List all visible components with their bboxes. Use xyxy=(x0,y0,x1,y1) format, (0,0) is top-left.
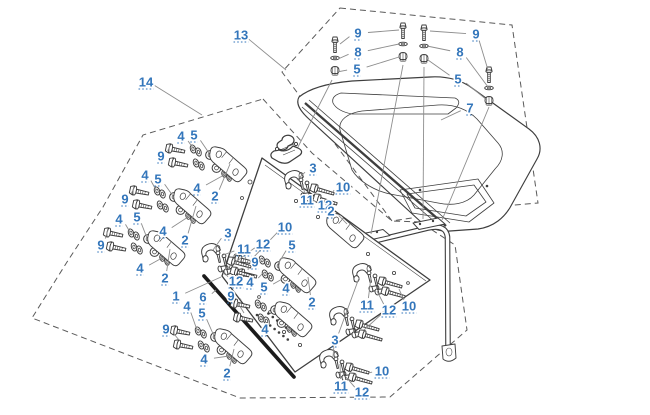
callout-leader xyxy=(141,223,147,238)
callout-5-44[interactable]: 5 xyxy=(260,280,268,295)
callout-2-23[interactable]: 2 xyxy=(161,271,169,286)
callout-number[interactable]: 2 xyxy=(211,189,218,204)
callout-number[interactable]: 9 xyxy=(251,255,258,270)
callout-number[interactable]: 2 xyxy=(161,271,168,286)
callout-2-28[interactable]: 2 xyxy=(223,366,231,381)
frame-foot-right xyxy=(442,344,456,361)
callout-4-43[interactable]: 4 xyxy=(246,275,254,290)
callout-9-26[interactable]: 9 xyxy=(162,322,170,337)
callout-leader xyxy=(165,184,173,196)
latch-part xyxy=(271,135,302,163)
callout-leader xyxy=(155,86,202,115)
callout-number[interactable]: 5 xyxy=(198,306,205,321)
callout-number[interactable]: 12 xyxy=(256,237,270,252)
callout-leader xyxy=(479,41,488,70)
callout-2-46[interactable]: 2 xyxy=(308,295,316,310)
callout-leader xyxy=(368,44,399,51)
callout-11-49[interactable]: 11 xyxy=(360,298,375,313)
callout-number[interactable]: 4 xyxy=(246,275,254,290)
callout-8-5[interactable]: 8 xyxy=(456,45,464,60)
callout-number[interactable]: 3 xyxy=(309,161,316,176)
callout-leader xyxy=(428,60,450,75)
callout-number[interactable]: 12 xyxy=(229,274,243,289)
callout-number[interactable]: 9 xyxy=(157,149,164,164)
callout-4-14[interactable]: 4 xyxy=(141,168,149,183)
callout-leader xyxy=(338,54,349,59)
callout-10-39[interactable]: 10 xyxy=(278,220,293,235)
fastener-stack xyxy=(399,23,408,62)
callout-number[interactable]: 11 xyxy=(237,242,251,257)
hardware-set xyxy=(103,227,190,268)
callout-5-10[interactable]: 5 xyxy=(190,128,198,143)
callout-4-12[interactable]: 4 xyxy=(193,181,201,196)
callout-number[interactable]: 11 xyxy=(360,298,374,313)
callout-number[interactable]: 9 xyxy=(354,26,361,41)
hardware-set xyxy=(165,143,252,184)
callout-number[interactable]: 5 xyxy=(260,280,267,295)
callout-number[interactable]: 6 xyxy=(199,290,206,305)
callout-11-32[interactable]: 11 xyxy=(300,193,315,208)
callout-6-30[interactable]: 6 xyxy=(199,290,207,305)
callout-number[interactable]: 3 xyxy=(331,333,338,348)
callout-number[interactable]: 5 xyxy=(454,72,461,87)
parts-diagram-page: 1398598571445942459424594245942163111210… xyxy=(0,0,650,415)
callout-4-22[interactable]: 4 xyxy=(136,261,144,276)
callout-number[interactable]: 12 xyxy=(382,303,396,318)
callout-4-19[interactable]: 4 xyxy=(115,212,123,227)
callout-4-24[interactable]: 4 xyxy=(183,299,191,314)
callout-number[interactable]: 1 xyxy=(172,289,179,304)
callout-number[interactable]: 4 xyxy=(282,281,290,296)
callout-number[interactable]: 8 xyxy=(456,45,463,60)
callout-9-41[interactable]: 9 xyxy=(251,255,259,270)
callout-leader xyxy=(200,140,209,153)
callout-number[interactable]: 4 xyxy=(177,129,185,144)
callout-9-4[interactable]: 9 xyxy=(472,27,480,42)
callout-leader xyxy=(207,319,214,336)
callout-number[interactable]: 5 xyxy=(154,172,161,187)
callout-leader xyxy=(340,364,341,379)
callout-9-1[interactable]: 9 xyxy=(354,26,362,41)
callout-4-48[interactable]: 4 xyxy=(261,322,269,337)
callout-leader xyxy=(368,30,399,32)
callout-2-18[interactable]: 2 xyxy=(181,233,189,248)
callout-12-54[interactable]: 12 xyxy=(355,385,370,400)
callout-number[interactable]: 9 xyxy=(162,322,169,337)
callout-leader xyxy=(149,258,162,265)
callout-leader xyxy=(191,312,197,330)
callout-number[interactable]: 8 xyxy=(354,45,361,60)
callout-number[interactable]: 9 xyxy=(97,238,104,253)
callout-number[interactable]: 4 xyxy=(261,322,269,337)
callout-4-9[interactable]: 4 xyxy=(177,129,185,144)
fastener-stack xyxy=(420,25,429,64)
callout-leader xyxy=(466,57,488,87)
callout-5-6[interactable]: 5 xyxy=(454,72,462,87)
callout-2-35[interactable]: 2 xyxy=(327,204,335,219)
callout-3-31[interactable]: 3 xyxy=(309,161,317,176)
callout-number[interactable]: 2 xyxy=(181,233,188,248)
callout-14-8[interactable]: 14 xyxy=(139,75,154,90)
callout-5-15[interactable]: 5 xyxy=(154,172,162,187)
callout-12-50[interactable]: 12 xyxy=(382,303,397,318)
callout-number[interactable]: 9 xyxy=(472,27,479,42)
callout-number[interactable]: 9 xyxy=(121,192,128,207)
callout-number[interactable]: 4 xyxy=(183,299,191,314)
callout-leader xyxy=(340,37,349,44)
callout-number[interactable]: 9 xyxy=(227,289,234,304)
callout-leader xyxy=(430,31,466,34)
hardware-set xyxy=(129,185,216,226)
callout-3-36[interactable]: 3 xyxy=(224,226,232,241)
callout-number[interactable]: 2 xyxy=(327,204,334,219)
callout-number[interactable]: 4 xyxy=(115,212,123,227)
callout-13-0[interactable]: 13 xyxy=(234,28,249,43)
callout-9-21[interactable]: 9 xyxy=(97,238,105,253)
callout-9-11[interactable]: 9 xyxy=(157,149,165,164)
callout-number[interactable]: 5 xyxy=(133,210,140,225)
callout-number[interactable]: 4 xyxy=(193,181,201,196)
callout-number[interactable]: 2 xyxy=(308,295,315,310)
callout-1-29[interactable]: 1 xyxy=(172,289,180,304)
callout-9-16[interactable]: 9 xyxy=(121,192,129,207)
callout-number[interactable]: 12 xyxy=(355,385,369,400)
fastener-stack xyxy=(331,37,340,76)
callout-2-13[interactable]: 2 xyxy=(211,189,219,204)
callout-12-38[interactable]: 12 xyxy=(256,237,271,252)
callout-3-52[interactable]: 3 xyxy=(331,333,339,348)
callout-leader xyxy=(172,217,188,228)
callout-5-40[interactable]: 5 xyxy=(288,238,296,253)
callout-5-20[interactable]: 5 xyxy=(133,210,141,225)
callout-number[interactable]: 4 xyxy=(159,224,167,239)
hardware-set xyxy=(170,325,257,366)
callout-number[interactable]: 5 xyxy=(288,238,295,253)
callout-number[interactable]: 11 xyxy=(334,379,348,394)
callout-leader xyxy=(333,190,334,192)
callout-11-37[interactable]: 11 xyxy=(237,242,252,257)
callout-5-3[interactable]: 5 xyxy=(353,62,361,77)
callout-number[interactable]: 10 xyxy=(375,364,389,379)
callout-number[interactable]: 4 xyxy=(200,352,208,367)
callout-leader xyxy=(249,39,286,70)
callout-number[interactable]: 3 xyxy=(224,226,231,241)
callout-7-7[interactable]: 7 xyxy=(466,101,474,116)
callout-10-34[interactable]: 10 xyxy=(336,180,351,195)
callout-number[interactable]: 11 xyxy=(300,193,314,208)
callout-10-55[interactable]: 10 xyxy=(375,364,390,379)
callout-number[interactable]: 7 xyxy=(466,101,473,116)
callout-8-2[interactable]: 8 xyxy=(354,45,362,60)
callout-number[interactable]: 14 xyxy=(139,75,154,90)
callout-5-25[interactable]: 5 xyxy=(198,306,206,321)
callout-9-47[interactable]: 9 xyxy=(227,289,235,304)
callout-10-51[interactable]: 10 xyxy=(402,299,417,314)
callout-leader xyxy=(206,175,224,185)
callout-leader xyxy=(240,299,241,300)
callout-number[interactable]: 4 xyxy=(136,261,144,276)
callout-12-42[interactable]: 12 xyxy=(229,274,244,289)
callout-number[interactable]: 10 xyxy=(278,220,292,235)
callout-leader xyxy=(212,290,216,294)
callout-4-17[interactable]: 4 xyxy=(159,224,167,239)
callout-number[interactable]: 13 xyxy=(234,28,248,43)
exploded-parts-diagram: 1398598571445942459424594245942163111210… xyxy=(0,0,650,415)
callout-number[interactable]: 4 xyxy=(141,168,149,183)
callout-4-27[interactable]: 4 xyxy=(200,352,208,367)
callout-number[interactable]: 5 xyxy=(353,62,360,77)
callout-number[interactable]: 10 xyxy=(336,180,350,195)
callout-11-53[interactable]: 11 xyxy=(334,379,349,394)
callout-number[interactable]: 10 xyxy=(402,299,416,314)
callout-leader xyxy=(427,46,450,51)
callout-number[interactable]: 2 xyxy=(223,366,230,381)
callout-number[interactable]: 5 xyxy=(190,128,197,143)
callout-leader xyxy=(367,57,399,67)
callout-4-45[interactable]: 4 xyxy=(282,281,290,296)
